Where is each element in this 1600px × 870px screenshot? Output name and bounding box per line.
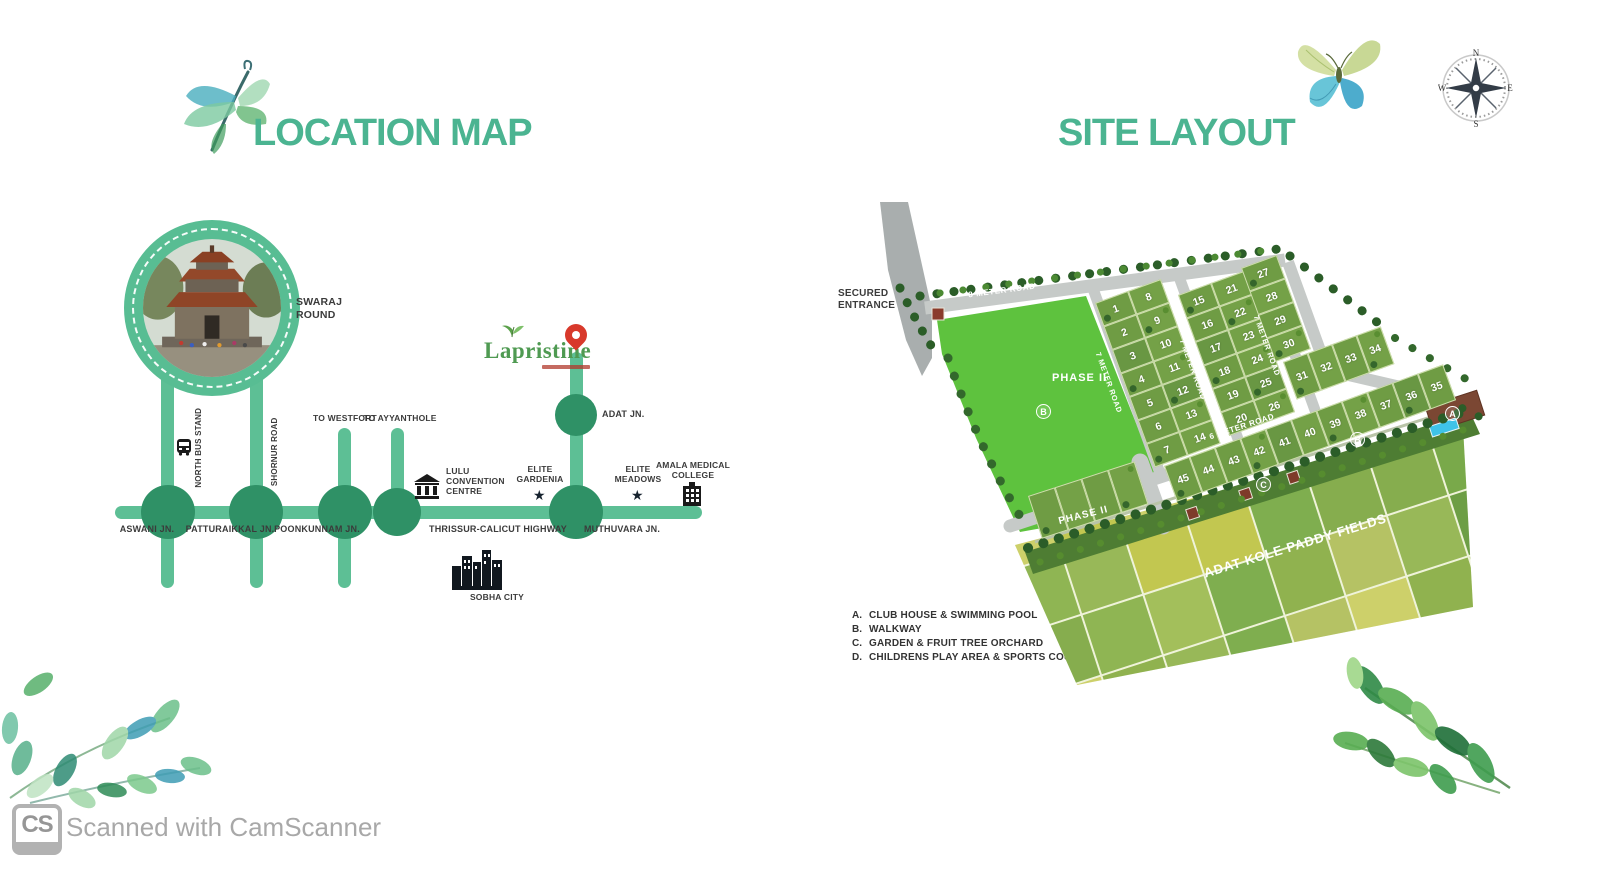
marker-b-2: B [1350,432,1365,447]
swaraj-round-label: SWARAJ ROUND [296,296,342,321]
paddy-cell [1061,737,1139,815]
amala-medical-label: AMALA MEDICAL COLLEGE [650,460,736,480]
secured-entrance-label: SECURED ENTRANCE [838,288,908,312]
elite-gardenia-star-icon: ★ [533,488,546,502]
camscanner-logo: CS [12,804,62,855]
site-plan: 1829310411512613714 15211622172318241925… [830,190,1520,710]
bus-icon [176,438,192,456]
location-map-title: LOCATION MAP [253,112,532,155]
lulu-convention-label: LULU CONVENTION CENTRE [446,466,505,497]
north-bus-stand-label: NORTH BUS STAND [194,405,204,491]
elite-gardenia-label: ELITE GARDENIA [510,464,570,484]
paddy-cell [1000,757,1078,835]
marker-b-1: B [1036,404,1051,419]
highway-label: THRISSUR-CALICUT HIGHWAY [428,524,568,535]
paddy-cell [1122,717,1200,795]
phase2-label-1: PHASE II [1052,372,1107,384]
compass-n: N [1473,48,1480,58]
sobha-city-icon [452,548,502,590]
elite-meadows-star-icon: ★ [631,488,644,502]
lapristine-logo: Lapristine [484,322,614,369]
compass-e: E [1507,83,1513,93]
junction-label-aswani: ASWANI JN. [107,524,187,535]
road-north-bus-stand [161,368,174,588]
watercolor-leaves-left [0,598,245,813]
adat-jn-label: ADAT JN. [602,409,644,420]
junction-label-poonkunnam: POONKUNNAM JN. [267,524,367,535]
medical-college-icon [681,482,703,506]
logo-tagline [542,365,590,369]
marker-c: C [1256,477,1271,492]
paddy-cell [1550,578,1600,656]
butterfly-decoration [1296,26,1384,118]
entrance-gate [932,308,944,320]
shornur-road-label: SHORNUR ROAD [270,409,280,495]
junction-label-patturaikkal: PATTURAIKKAL JN. [180,524,280,535]
logo-text: Lapristine [484,338,614,364]
paddy-cell [1530,518,1600,596]
junction-dot-adat [555,394,597,436]
sobha-city-label: SOBHA CITY [452,592,542,602]
site-layout-title: SITE LAYOUT [1058,112,1295,155]
junction-label-muthuvara: MUTHUVARA JN. [582,524,662,535]
temple-photo [143,239,281,377]
compass-w: W [1438,83,1447,93]
to-ayyanthole-label: TO AYYANTHOLE [360,413,440,423]
compass-s: S [1473,119,1478,128]
compass-icon: N E S W [1438,48,1514,128]
swaraj-round-ring [124,220,300,396]
paddy-cell [1510,457,1588,535]
road-shornur [250,368,263,588]
logo-leaf-icon [498,322,526,338]
convention-centre-icon [413,474,441,500]
marker-a: A [1445,406,1460,421]
camscanner-watermark-text: Scanned with CamScanner [66,812,381,843]
